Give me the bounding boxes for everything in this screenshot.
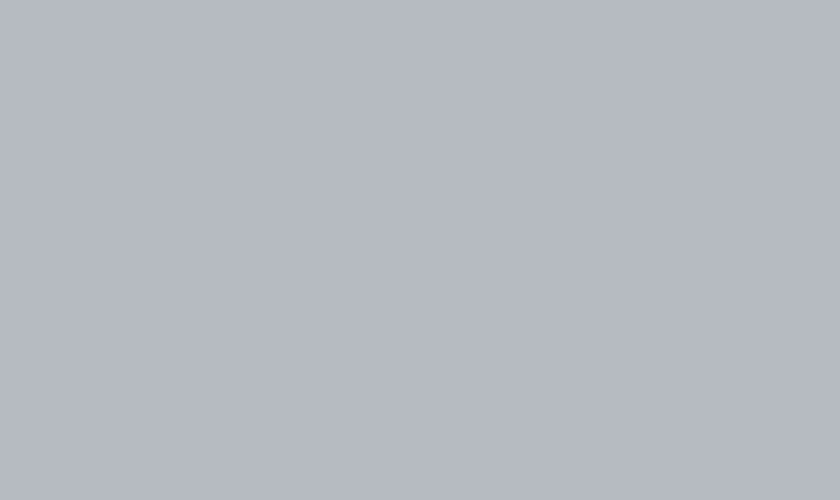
aerial-rendering-canvas: [0, 0, 840, 500]
screenshot-root: [0, 0, 840, 500]
